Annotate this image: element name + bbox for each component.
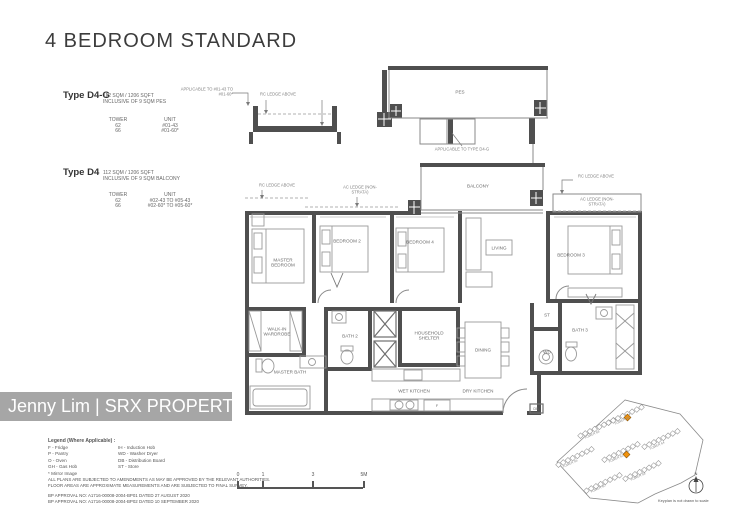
legend-item: IH - Induction Hob (118, 445, 228, 452)
room-label-household-shelter: HOUSEHOLD SHELTER (411, 331, 447, 342)
scale-label: 3 (312, 472, 315, 478)
room-label-master-bedroom: MASTER BEDROOM (265, 258, 301, 269)
legend-item: ST - Store (118, 464, 228, 471)
legend-item: DB - Distribution Board (118, 458, 228, 465)
annotation-applicable-units: APPLICABLE TO #01-43 TO #01-60* (177, 87, 233, 96)
room-label-walk-in-wardrobe: WALK-IN WARDROBE (260, 327, 294, 338)
approval-line: BP APPROVAL NO: A1716-00008-2004-BP02 DA… (48, 499, 199, 505)
legend-title: Legend (Where Applicable) : (48, 438, 228, 445)
keyplan: TOWER 68 TOWER 66 TOWER 64 TOWER 56 TOWE… (545, 395, 750, 529)
room-label-bedroom4: BEDROOM 4 (406, 239, 434, 244)
room-label-bedroom2: BEDROOM 2 (333, 238, 361, 243)
label-distribution-board: DB (533, 407, 538, 411)
scale-tick (262, 481, 264, 488)
label-fridge: F (436, 404, 438, 408)
room-label-wet-kitchen: WET KITCHEN (398, 388, 430, 393)
room-label-bath2: BATH 2 (342, 333, 358, 338)
agent-watermark: Jenny Lim | SRX PROPERTY (0, 392, 232, 421)
legend-row: P - PantryWD - Washer Dryer (48, 451, 228, 458)
room-label-bath3: BATH 3 (572, 327, 588, 332)
room-label-dry-kitchen: DRY KITCHEN (463, 388, 494, 393)
keyplan-note: Keyplan is not drawn to scale (658, 498, 709, 503)
scale-label: 1 (262, 472, 265, 478)
legend-item: F - Fridge (48, 445, 118, 452)
legend-item: GH - Gas Hob (48, 464, 118, 471)
legend-item: O - Oven (48, 458, 118, 465)
room-label-pes: PES (455, 89, 464, 94)
scale-tick (312, 481, 314, 488)
annotation-ac-ledge: AC LEDGE (NON-STRATA) (342, 185, 378, 194)
legend-row: F - FridgeIH - Induction Hob (48, 445, 228, 452)
room-label-bedroom3: BEDROOM 3 (557, 252, 585, 257)
annotation-rc-ledge-above: RC LEDGE ABOVE (260, 93, 296, 98)
annotation-rc-ledge-above: RC LEDGE ABOVE (259, 184, 295, 189)
scale-bar-line (237, 487, 363, 489)
annotation-applicable-type: APPLICABLE TO TYPE D4-G (435, 148, 489, 153)
legend-row: O - OvenDB - Distribution Board (48, 458, 228, 465)
keyplan-tower-clusters (556, 404, 681, 493)
legend: Legend (Where Applicable) : F - FridgeIH… (48, 438, 228, 478)
bp-approvals: BP APPROVAL NO: A1716-00008-2004-BP01 DA… (48, 493, 199, 505)
room-label-master-bath: MASTER BATH (274, 369, 306, 374)
north-label: N (695, 471, 698, 476)
room-label-balcony: BALCONY (467, 183, 489, 188)
legend-item: WD - Washer Dryer (118, 451, 228, 458)
tower-label: TOWER 60 (590, 483, 607, 494)
legend-row: GH - Gas HobST - Store (48, 464, 228, 471)
annotation-rc-ledge-above: RC LEDGE ABOVE (578, 175, 614, 180)
scale-tick (237, 481, 239, 488)
scale-label: 5M (361, 472, 368, 478)
annotation-ac-ledge: AC LEDGE (NON-STRATA) (576, 197, 618, 206)
legend-item: P - Pantry (48, 451, 118, 458)
scale-label: 0 (237, 472, 240, 478)
room-label-washer-dryer: WD (543, 349, 551, 354)
keyplan-outline (557, 400, 703, 503)
room-label-living: LIVING (491, 245, 506, 250)
room-label-store: ST (544, 312, 550, 317)
scale-tick (363, 481, 365, 488)
floorplan-page: { "title": "4 BEDROOM STANDARD", "types"… (0, 0, 750, 529)
north-compass-icon: N (689, 471, 703, 493)
room-label-dining: DINING (475, 347, 491, 352)
scale-bar: 0 1 3 5M (235, 470, 375, 496)
